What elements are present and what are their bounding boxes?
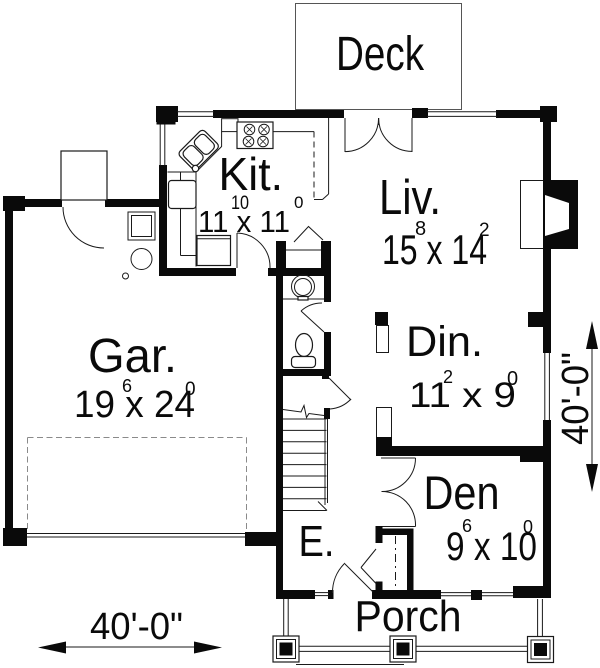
svg-text:E.: E. [299, 517, 335, 566]
svg-text:40'-0": 40'-0" [555, 352, 597, 445]
svg-text:Kit.: Kit. [219, 148, 284, 200]
svg-text:11 x 9: 11 x 9 [409, 376, 516, 415]
svg-text:Den: Den [424, 466, 500, 519]
svg-text:Deck: Deck [336, 28, 425, 81]
svg-text:11 x 11: 11 x 11 [198, 204, 290, 239]
svg-text:Liv.: Liv. [379, 171, 441, 225]
svg-text:0: 0 [185, 379, 196, 400]
svg-text:Gar.: Gar. [88, 330, 177, 383]
svg-text:0: 0 [523, 517, 533, 537]
svg-text:2: 2 [479, 220, 490, 241]
svg-text:Din.: Din. [406, 318, 483, 366]
svg-text:0: 0 [294, 193, 303, 212]
svg-text:Porch: Porch [355, 592, 462, 641]
svg-text:40'-0": 40'-0" [90, 606, 183, 648]
svg-text:15 x 14: 15 x 14 [382, 226, 487, 273]
svg-text:19 x 24: 19 x 24 [74, 384, 195, 426]
svg-text:0: 0 [507, 368, 518, 390]
